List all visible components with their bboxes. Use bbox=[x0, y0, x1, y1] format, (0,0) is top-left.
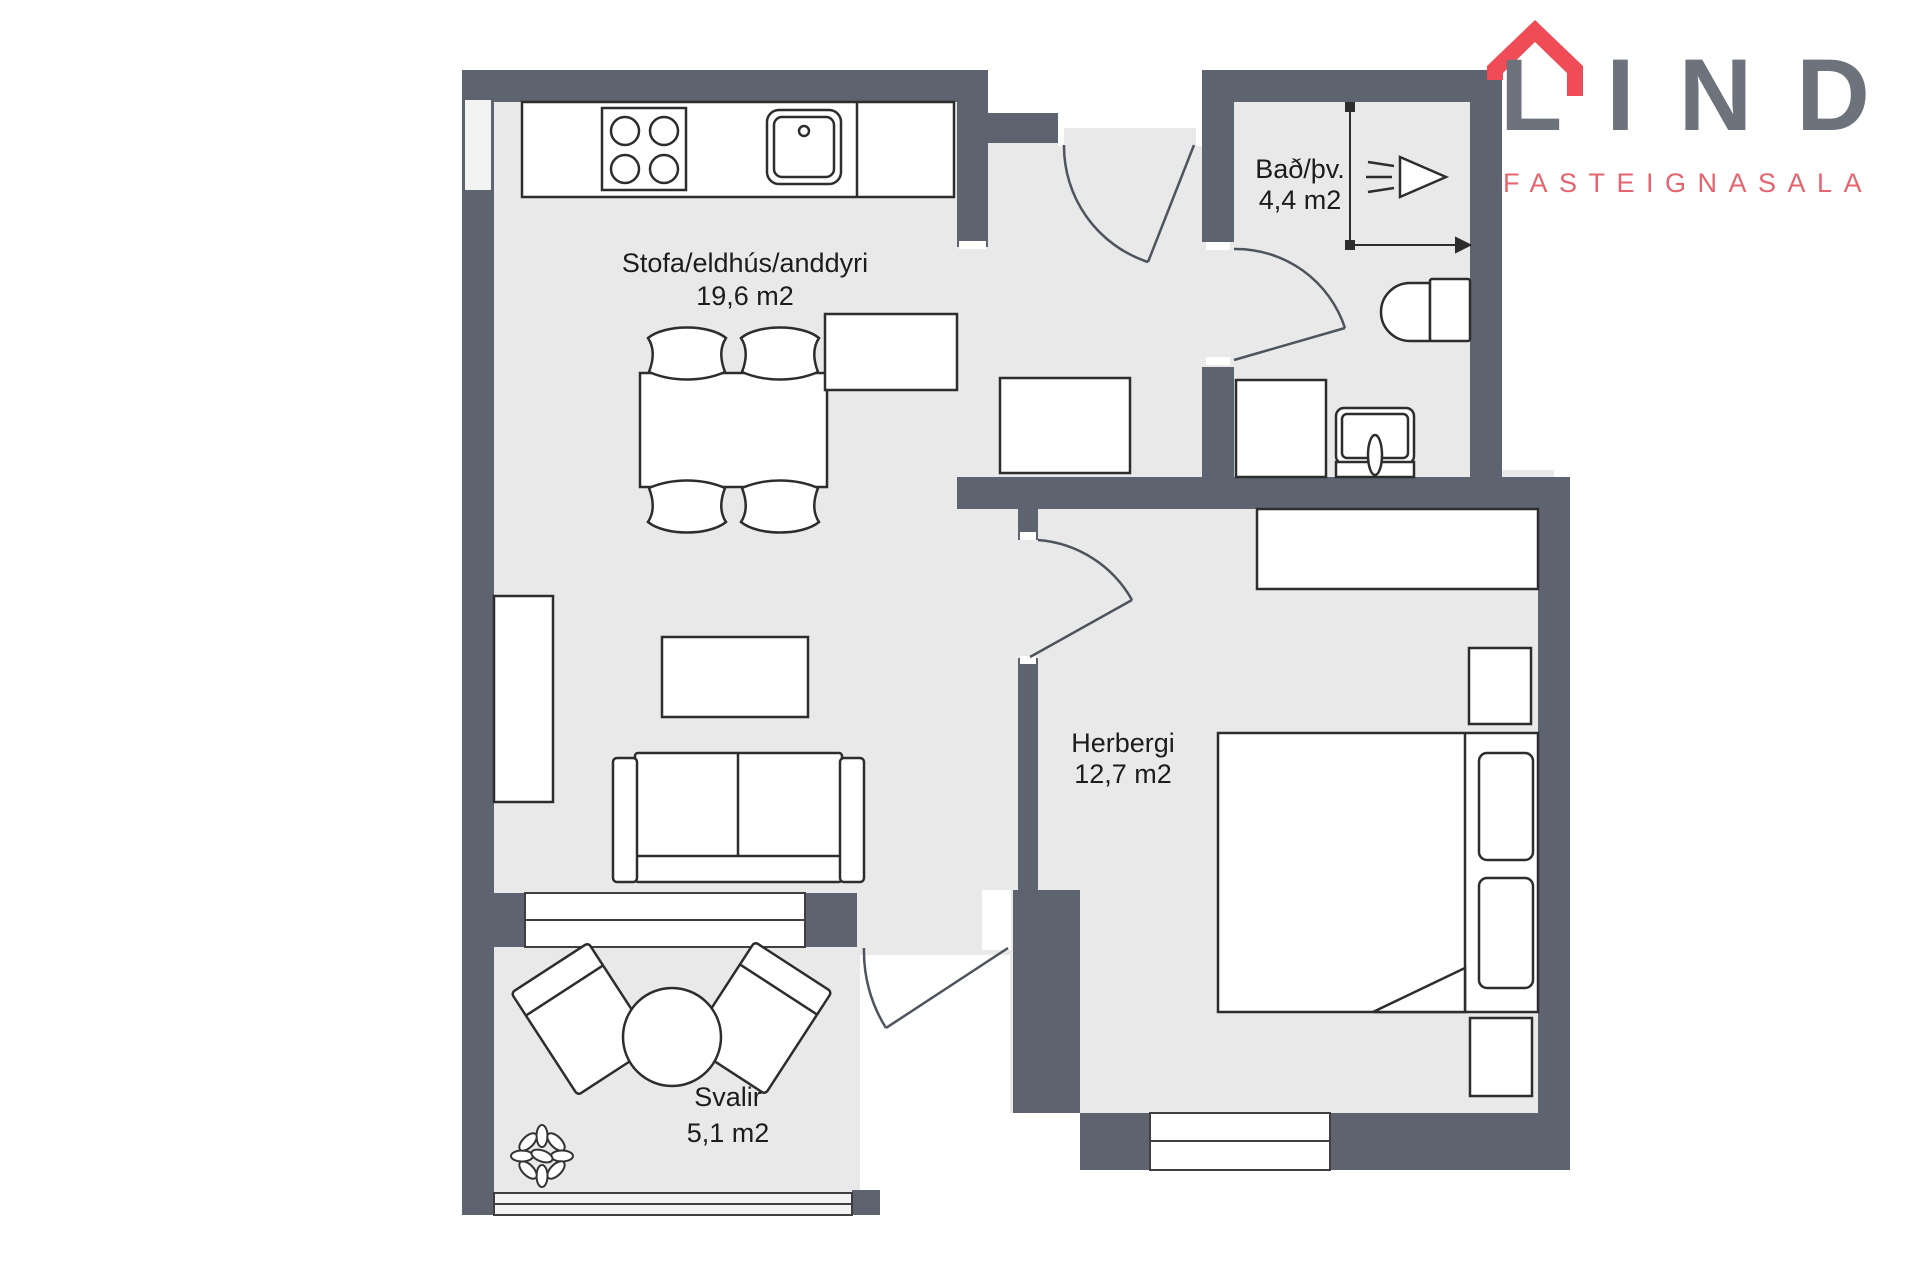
wall-segment bbox=[1202, 367, 1234, 477]
toilet-icon bbox=[1381, 279, 1470, 341]
room-area: 5,1 m2 bbox=[687, 1118, 770, 1148]
floorplan-page: Stofa/eldhús/anddyri 19,6 m2 Bað/þv. 4,4… bbox=[0, 0, 1920, 1280]
room-name: Herbergi bbox=[1071, 728, 1175, 758]
wall-segment bbox=[1470, 70, 1502, 509]
door-jamb bbox=[1196, 110, 1202, 146]
window bbox=[465, 100, 491, 190]
room-label-bathroom: Bað/þv. 4,4 m2 bbox=[1255, 154, 1345, 215]
room-area: 4,4 m2 bbox=[1259, 185, 1342, 215]
balcony-railing bbox=[494, 1193, 852, 1215]
pillow-icon bbox=[1479, 878, 1533, 988]
wall-segment bbox=[988, 113, 1064, 143]
door-jamb bbox=[1020, 656, 1036, 664]
wall-segment bbox=[852, 1190, 880, 1215]
window bbox=[1150, 1113, 1330, 1170]
nightstand-icon bbox=[1470, 1018, 1532, 1096]
window bbox=[525, 893, 805, 947]
room-name: Svalir bbox=[694, 1082, 762, 1112]
room-label-bedroom: Herbergi 12,7 m2 bbox=[1071, 728, 1175, 789]
door-jamb bbox=[982, 890, 1011, 950]
door-jamb bbox=[959, 241, 986, 249]
wall-segment bbox=[1202, 70, 1502, 102]
wall-segment bbox=[805, 893, 857, 947]
wall-segment bbox=[1013, 890, 1080, 1113]
wall-segment bbox=[1018, 658, 1038, 890]
nightstand-icon bbox=[1469, 648, 1531, 724]
sideboard-icon bbox=[1000, 378, 1130, 473]
wall-segment bbox=[1330, 1113, 1570, 1170]
burner-icon bbox=[611, 155, 639, 183]
wall-segment bbox=[957, 102, 988, 247]
cabinet-icon bbox=[825, 314, 957, 390]
sofa-icon bbox=[613, 753, 864, 882]
dining-chair-icon bbox=[741, 328, 819, 380]
balcony-door bbox=[864, 948, 1008, 1028]
burner-icon bbox=[650, 155, 678, 183]
pillow-icon bbox=[1479, 753, 1533, 860]
dining-chair-icon bbox=[648, 481, 726, 533]
room-area: 12,7 m2 bbox=[1074, 759, 1172, 789]
wall-segment bbox=[462, 70, 494, 1215]
kitchen bbox=[522, 102, 954, 197]
wall-segment bbox=[957, 477, 1570, 509]
room-name: Bað/þv. bbox=[1255, 154, 1345, 184]
floor-area bbox=[988, 128, 1010, 955]
faucet-icon bbox=[799, 126, 809, 136]
dining-table-icon bbox=[640, 373, 827, 487]
wall-segment bbox=[462, 70, 988, 102]
wall-segment bbox=[462, 893, 525, 947]
burner-icon bbox=[650, 117, 678, 145]
dining-chair-icon bbox=[741, 481, 819, 533]
bed-icon bbox=[1218, 733, 1538, 1012]
tv-bench-icon bbox=[494, 596, 553, 802]
kitchen-counter bbox=[522, 102, 954, 197]
door-jamb bbox=[1058, 110, 1064, 146]
washbasin-icon bbox=[1336, 408, 1414, 477]
door-jamb bbox=[1020, 532, 1036, 540]
wall-segment bbox=[1080, 1113, 1150, 1170]
washing-machine-icon bbox=[1236, 380, 1326, 477]
door-jamb bbox=[1206, 357, 1230, 365]
desk-icon bbox=[1257, 509, 1538, 589]
coffee-table-icon bbox=[662, 637, 808, 717]
room-name: Stofa/eldhús/anddyri bbox=[622, 248, 868, 278]
burner-icon bbox=[611, 117, 639, 145]
room-area: 19,6 m2 bbox=[696, 281, 794, 311]
door-jamb bbox=[1206, 242, 1230, 250]
balcony-table-icon bbox=[623, 988, 721, 1086]
dining-chair-icon bbox=[648, 328, 726, 380]
floorplan-drawing: Stofa/eldhús/anddyri 19,6 m2 Bað/þv. 4,4… bbox=[0, 0, 1920, 1280]
wall-segment bbox=[1538, 477, 1570, 1170]
